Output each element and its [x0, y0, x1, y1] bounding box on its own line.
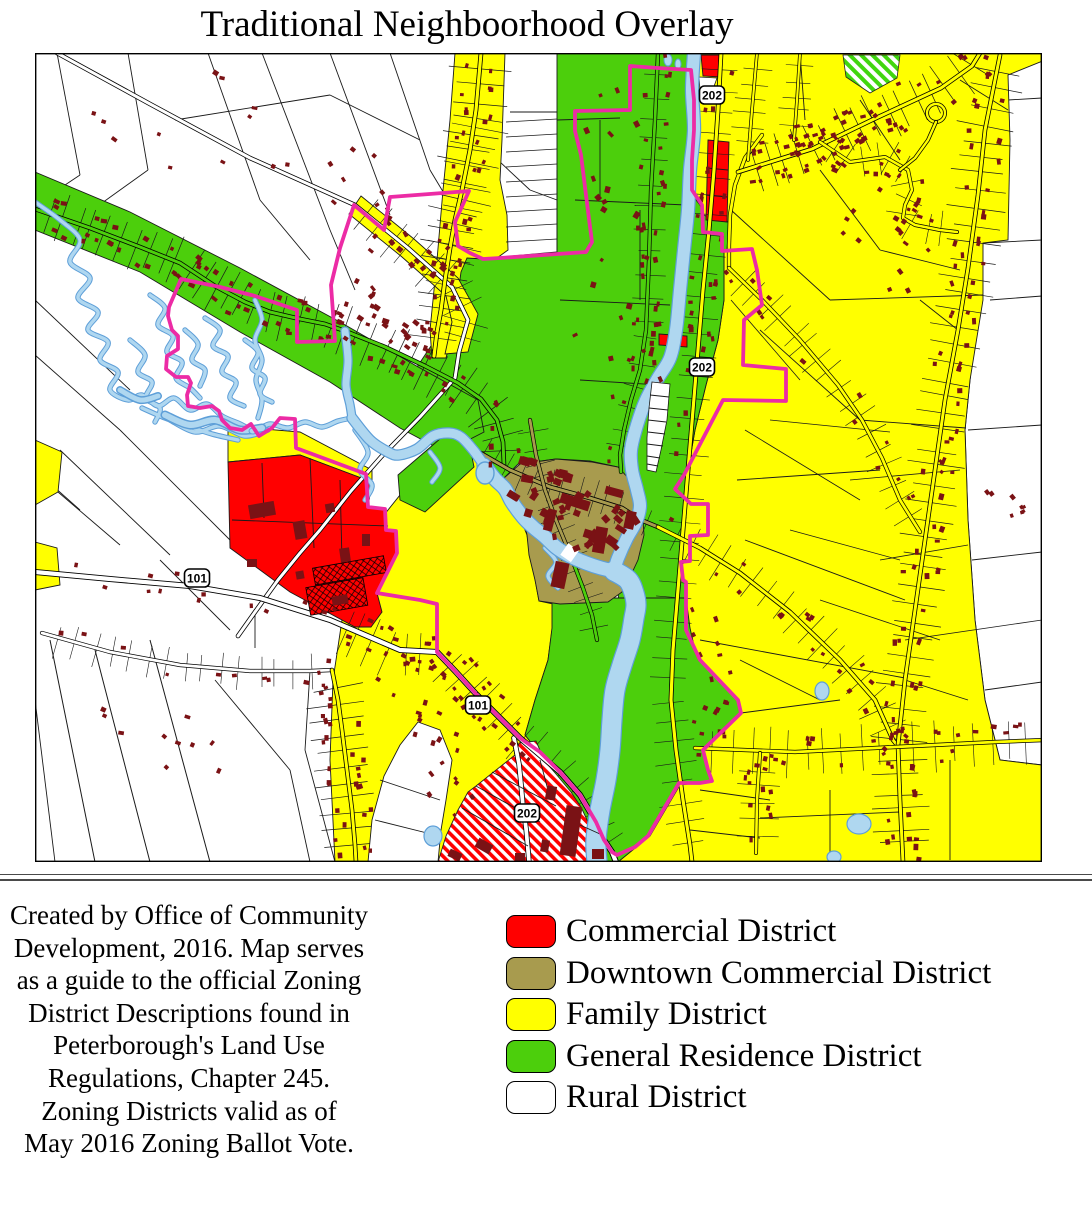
svg-text:202: 202 — [692, 361, 712, 375]
svg-text:202: 202 — [517, 807, 537, 821]
svg-text:101: 101 — [468, 699, 488, 713]
svg-text:101: 101 — [187, 572, 207, 586]
svg-text:202: 202 — [702, 89, 722, 103]
